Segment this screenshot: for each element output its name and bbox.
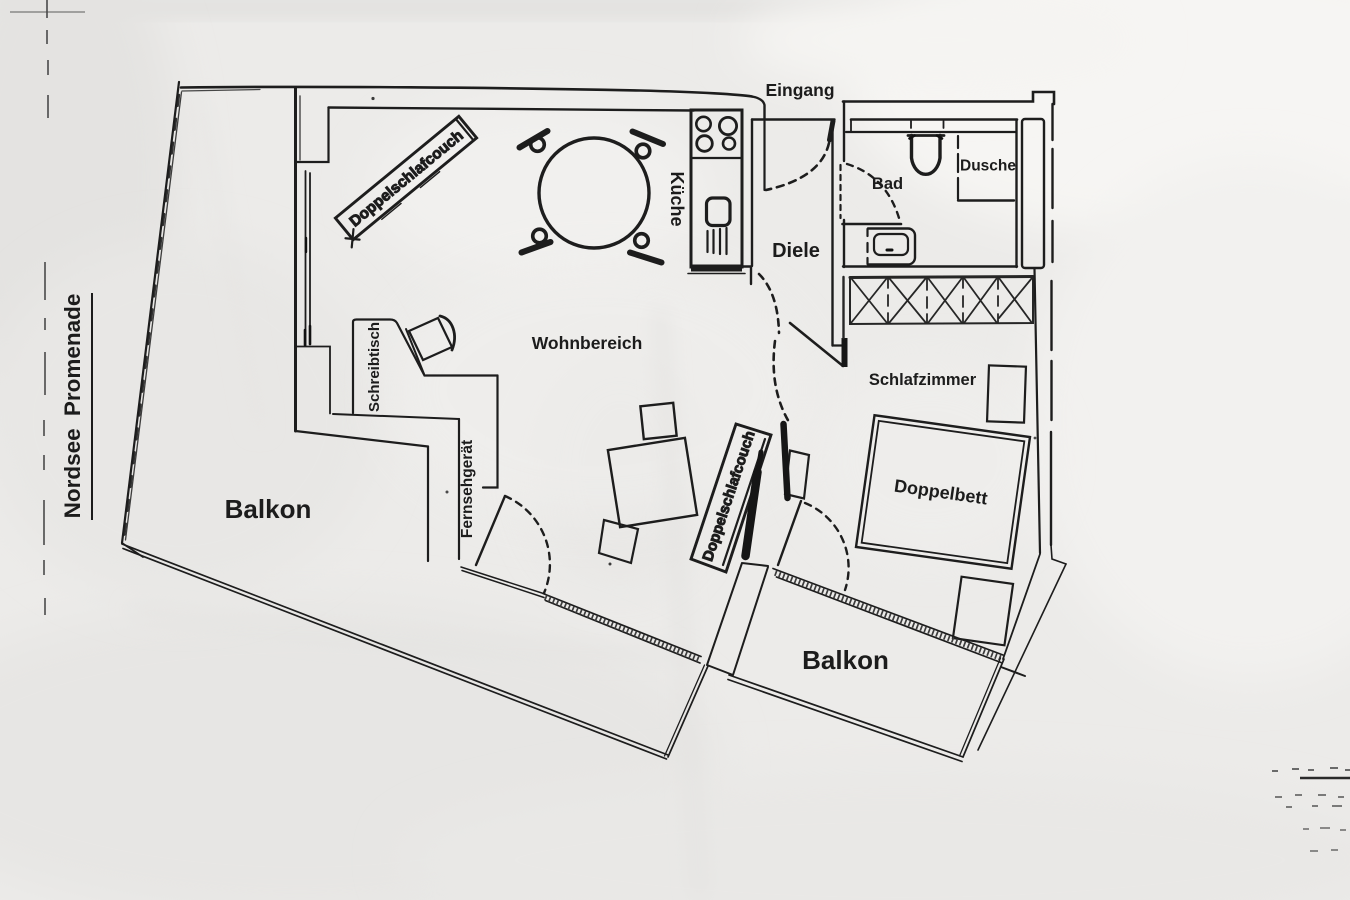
svg-text:Balkon: Balkon (802, 645, 889, 675)
svg-text:Fernsehgerät: Fernsehgerät (459, 440, 476, 538)
svg-text:Schreibtisch: Schreibtisch (366, 322, 383, 412)
svg-text:Diele: Diele (772, 240, 820, 262)
svg-text:Schlafzimmer: Schlafzimmer (869, 371, 977, 389)
svg-text:Wohnbereich: Wohnbereich (532, 333, 643, 353)
svg-text:Bad: Bad (872, 175, 903, 193)
svg-text:Balkon: Balkon (225, 494, 312, 524)
svg-text:Eingang: Eingang (765, 80, 834, 100)
svg-text:Küche: Küche (667, 171, 687, 226)
svg-text:Dusche: Dusche (960, 158, 1016, 175)
svg-text:Nordsee Promenade: Nordsee Promenade (60, 294, 85, 519)
